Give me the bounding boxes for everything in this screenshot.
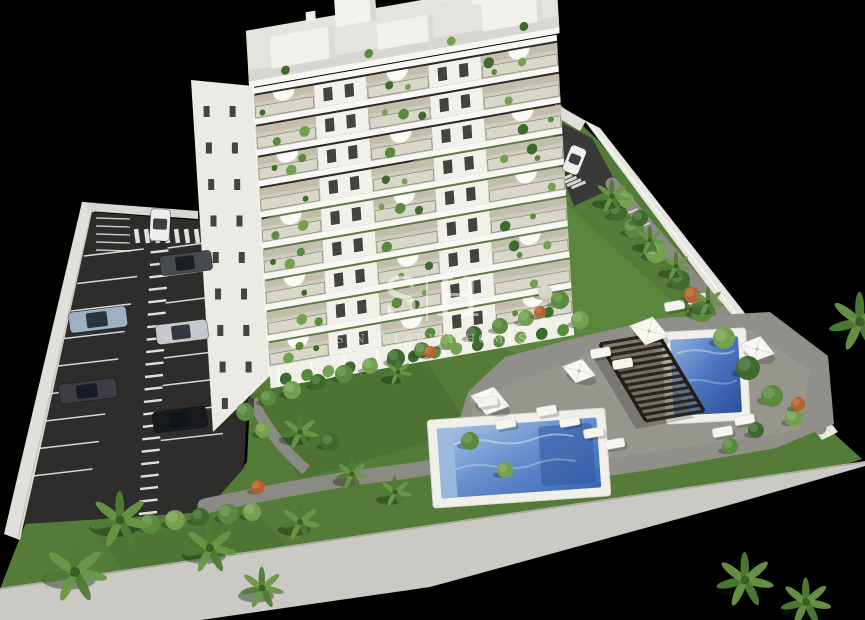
site-plan-3d-render [0,0,865,620]
building-facade [244,0,578,389]
render-canvas: SH SINGULARITY HOMES [0,0,865,620]
palm-tree [715,552,774,607]
car-white-lane [149,208,171,241]
palm-tree [779,577,832,620]
palm-tree [828,292,865,352]
swimming-pool-main [427,408,611,508]
